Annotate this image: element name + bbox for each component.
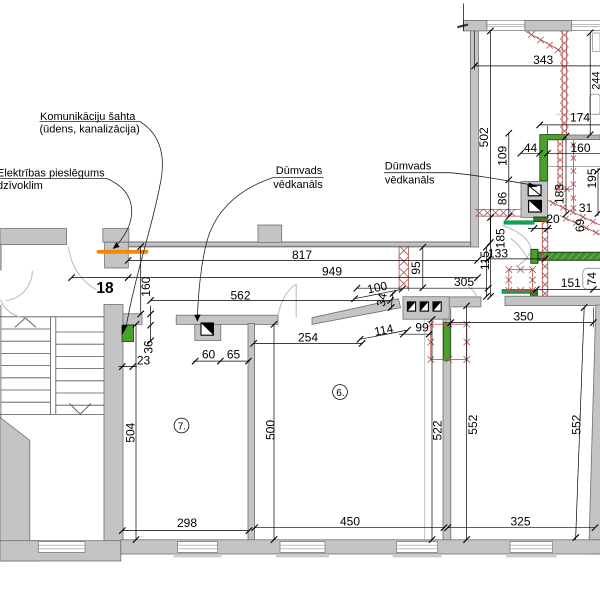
- svg-text:dzīvoklim: dzīvoklim: [0, 180, 43, 192]
- svg-text:31: 31: [579, 201, 593, 215]
- svg-text:298: 298: [177, 516, 197, 530]
- svg-text:60: 60: [202, 348, 216, 362]
- svg-text:174: 174: [570, 111, 590, 125]
- svg-text:(ūdens, kanalizācija): (ūdens, kanalizācija): [40, 123, 140, 135]
- svg-text:23: 23: [137, 354, 151, 368]
- svg-text:44: 44: [524, 141, 538, 155]
- svg-text:500: 500: [264, 420, 278, 440]
- svg-text:502: 502: [477, 127, 491, 147]
- svg-text:183: 183: [553, 184, 567, 204]
- svg-text:552: 552: [570, 414, 584, 434]
- svg-text:86: 86: [496, 192, 510, 206]
- svg-text:109: 109: [495, 145, 509, 165]
- svg-text:36: 36: [141, 340, 155, 354]
- svg-text:vēdkanāls: vēdkanāls: [273, 179, 323, 191]
- svg-text:20: 20: [546, 212, 560, 226]
- svg-text:343: 343: [533, 53, 553, 67]
- svg-text:151: 151: [561, 276, 581, 290]
- svg-text:Dūmvads: Dūmvads: [385, 161, 432, 173]
- svg-text:305: 305: [454, 275, 474, 289]
- svg-text:185: 185: [493, 228, 507, 248]
- svg-text:949: 949: [322, 265, 342, 279]
- svg-text:160: 160: [139, 276, 153, 296]
- svg-text:69: 69: [573, 219, 587, 233]
- svg-text:562: 562: [230, 288, 250, 302]
- svg-text:450: 450: [340, 515, 360, 529]
- svg-text:195: 195: [585, 168, 599, 188]
- svg-text:244: 244: [591, 71, 600, 89]
- svg-text:Dūmvads: Dūmvads: [276, 165, 323, 177]
- svg-text:34: 34: [374, 292, 390, 308]
- svg-text:18: 18: [96, 280, 114, 297]
- svg-text:74: 74: [585, 272, 599, 286]
- svg-text:95: 95: [409, 261, 423, 275]
- svg-text:vēdkanāls: vēdkanāls: [385, 174, 435, 186]
- svg-text:Elektrības pieslēgums: Elektrības pieslēgums: [0, 167, 105, 179]
- svg-text:504: 504: [124, 422, 138, 442]
- svg-text:160: 160: [570, 141, 590, 155]
- svg-text:133: 133: [488, 247, 508, 261]
- svg-text:552: 552: [466, 414, 480, 434]
- svg-text:325: 325: [510, 515, 530, 529]
- svg-text:522: 522: [430, 420, 444, 440]
- svg-text:350: 350: [513, 310, 533, 324]
- svg-text:Komunikāciju šahta: Komunikāciju šahta: [40, 111, 136, 123]
- svg-text:6.: 6.: [336, 388, 344, 399]
- svg-text:99: 99: [415, 321, 429, 335]
- svg-text:7.: 7.: [178, 421, 186, 432]
- svg-text:65: 65: [227, 348, 241, 362]
- svg-text:254: 254: [298, 331, 318, 345]
- svg-text:817: 817: [292, 248, 312, 262]
